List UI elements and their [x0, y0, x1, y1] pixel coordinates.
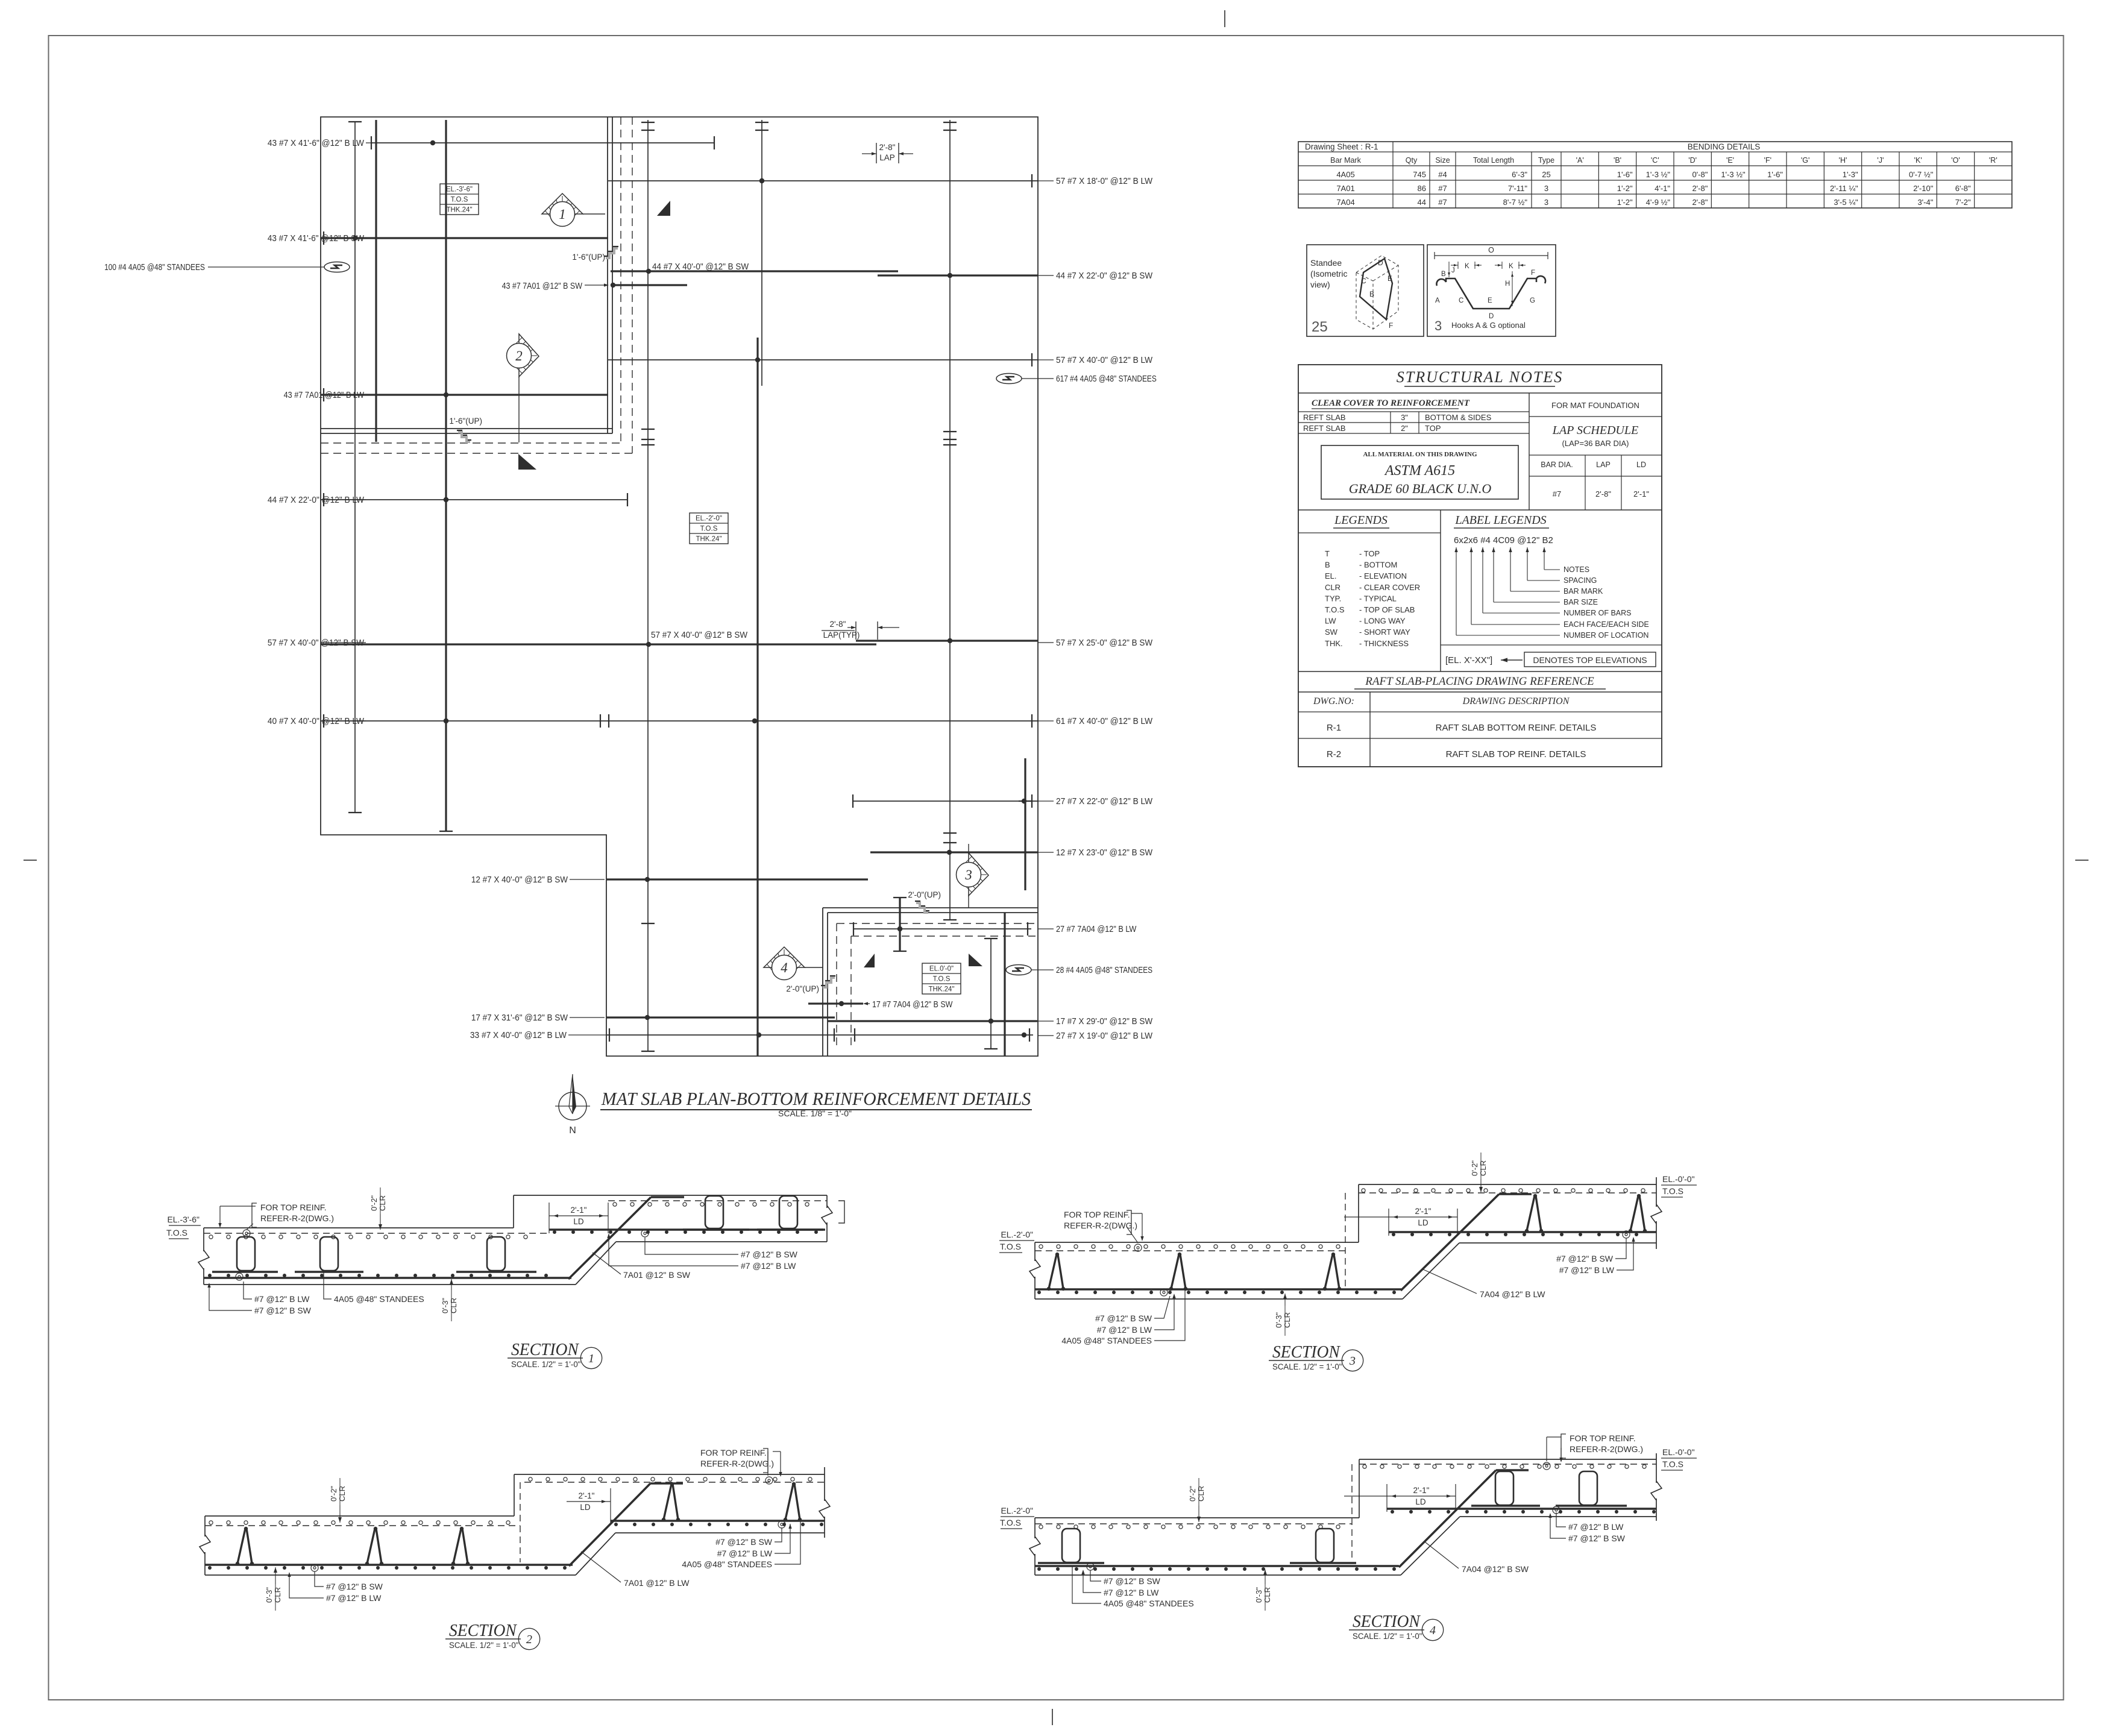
svg-text:2'-8": 2'-8" — [1692, 184, 1708, 193]
svg-text:Qty: Qty — [1406, 156, 1418, 165]
svg-text:- SHORT WAY: - SHORT WAY — [1359, 627, 1410, 637]
svg-text:0'-3": 0'-3" — [441, 1298, 450, 1313]
svg-text:25: 25 — [1542, 170, 1550, 179]
svg-text:6x2x6 #4 4C09 @12" B2: 6x2x6 #4 4C09 @12" B2 — [1454, 535, 1553, 546]
svg-text:3: 3 — [1544, 198, 1548, 207]
svg-text:1'-2": 1'-2" — [1617, 184, 1633, 193]
svg-text:'F': 'F' — [1764, 156, 1771, 165]
svg-text:TOP: TOP — [1425, 424, 1441, 433]
svg-text:100 #4 4A05 @48" STANDEES: 100 #4 4A05 @48" STANDEES — [104, 263, 205, 272]
svg-text:C: C — [1459, 297, 1463, 304]
svg-text:'R': 'R' — [1989, 156, 1997, 165]
svg-text:17 #7 7A04 @12" B SW: 17 #7 7A04 @12" B SW — [872, 1000, 953, 1010]
svg-text:R-2: R-2 — [1327, 749, 1341, 759]
svg-text:SW: SW — [1325, 627, 1338, 637]
svg-text:40 #7 X 40'-0" @12" B LW: 40 #7 X 40'-0" @12" B LW — [268, 717, 364, 726]
svg-text:- TOP: - TOP — [1359, 549, 1380, 558]
svg-text:1: 1 — [588, 1352, 594, 1365]
svg-text:1'-2": 1'-2" — [1617, 198, 1633, 207]
svg-text:B: B — [1369, 290, 1374, 298]
svg-text:LD: LD — [573, 1217, 584, 1226]
svg-text:2'-0"(UP): 2'-0"(UP) — [786, 984, 819, 993]
svg-text:CLR: CLR — [1196, 1486, 1205, 1502]
svg-text:1'-6"(UP): 1'-6"(UP) — [572, 253, 605, 262]
svg-text:Hooks A & G optional: Hooks A & G optional — [1451, 321, 1526, 330]
svg-text:0'-2": 0'-2" — [1470, 1160, 1479, 1176]
svg-text:#7 @12" B SW: #7 @12" B SW — [1104, 1576, 1161, 1586]
svg-text:SECTION: SECTION — [449, 1621, 517, 1640]
svg-text:3: 3 — [1349, 1354, 1356, 1368]
svg-text:N: N — [569, 1125, 576, 1136]
svg-text:7A04 @12" B LW: 7A04 @12" B LW — [1480, 1289, 1545, 1299]
svg-text:CLR: CLR — [1263, 1587, 1272, 1603]
svg-text:T.O.S: T.O.S — [933, 976, 951, 983]
svg-text:D: D — [1378, 259, 1383, 267]
svg-text:T.O.S: T.O.S — [1000, 1518, 1021, 1527]
svg-text:1'-3": 1'-3" — [1843, 170, 1858, 179]
svg-text:4A05 @48" STANDEES: 4A05 @48" STANDEES — [682, 1559, 772, 1569]
svg-text:2'-1": 2'-1" — [1413, 1486, 1430, 1495]
svg-text:- ELEVATION: - ELEVATION — [1359, 571, 1407, 580]
svg-text:7'-11": 7'-11" — [1508, 184, 1528, 193]
svg-text:SECTION: SECTION — [511, 1341, 579, 1359]
svg-text:EACH FACE/EACH SIDE: EACH FACE/EACH SIDE — [1564, 620, 1649, 629]
svg-text:REFER-R-2(DWG.): REFER-R-2(DWG.) — [1570, 1444, 1643, 1454]
svg-text:0'-7 ½": 0'-7 ½" — [1909, 170, 1934, 179]
svg-text:Type: Type — [1538, 156, 1554, 165]
svg-text:REFT SLAB: REFT SLAB — [1303, 424, 1346, 433]
svg-text:LAP: LAP — [1596, 461, 1611, 469]
svg-text:#7: #7 — [1438, 198, 1447, 207]
svg-text:27 #7 7A04 @12" B LW: 27 #7 7A04 @12" B LW — [1056, 925, 1137, 934]
svg-text:57 #7 X 40'-0" @12" B LW: 57 #7 X 40'-0" @12" B LW — [1056, 356, 1152, 365]
svg-text:7A01 @12" B SW: 7A01 @12" B SW — [623, 1270, 691, 1280]
svg-text:#7 @12" B LW: #7 @12" B LW — [326, 1593, 382, 1603]
svg-text:BAR DIA.: BAR DIA. — [1541, 461, 1573, 469]
svg-text:'G': 'G' — [1801, 156, 1810, 165]
svg-text:F: F — [1531, 269, 1535, 277]
svg-text:SCALE. 1/2" = 1'-0": SCALE. 1/2" = 1'-0" — [449, 1641, 519, 1650]
svg-text:- THICKNESS: - THICKNESS — [1359, 639, 1409, 648]
svg-text:17 #7 X 29'-0" @12" B SW: 17 #7 X 29'-0" @12" B SW — [1056, 1017, 1152, 1027]
svg-text:27 #7 X 19'-0" @12" B LW: 27 #7 X 19'-0" @12" B LW — [1056, 1031, 1152, 1041]
svg-text:SCALE. 1/2" = 1'-0": SCALE. 1/2" = 1'-0" — [1272, 1362, 1342, 1371]
svg-text:4A05: 4A05 — [1336, 170, 1354, 179]
svg-text:86: 86 — [1418, 184, 1426, 193]
svg-text:ASTM A615: ASTM A615 — [1384, 463, 1455, 479]
svg-text:#7 @12" B SW: #7 @12" B SW — [326, 1582, 383, 1591]
svg-text:LD: LD — [1636, 461, 1646, 469]
svg-text:LAP(TYP): LAP(TYP) — [823, 631, 860, 640]
svg-text:SCALE. 1/2" = 1'-0": SCALE. 1/2" = 1'-0" — [1353, 1632, 1422, 1641]
svg-text:LAP SCHEDULE: LAP SCHEDULE — [1552, 424, 1638, 437]
svg-text:ALL MATERIAL ON THIS DRAWING: ALL MATERIAL ON THIS DRAWING — [1363, 451, 1477, 458]
svg-text:T.O.S: T.O.S — [1325, 605, 1345, 614]
svg-text:#7: #7 — [1438, 184, 1447, 193]
svg-text:7'-2": 7'-2" — [1955, 198, 1971, 207]
svg-text:- TOP OF SLAB: - TOP OF SLAB — [1359, 605, 1415, 614]
svg-text:2'-0"(UP): 2'-0"(UP) — [908, 890, 941, 899]
svg-text:B: B — [1441, 271, 1446, 278]
svg-text:2'-1": 2'-1" — [579, 1491, 595, 1500]
svg-text:2'-8": 2'-8" — [1692, 198, 1708, 207]
svg-text:3": 3" — [1401, 413, 1408, 422]
svg-text:RAFT SLAB-PLACING DRAWING REFE: RAFT SLAB-PLACING DRAWING REFERENCE — [1365, 675, 1594, 688]
svg-text:Size: Size — [1435, 156, 1450, 165]
svg-text:REFT SLAB: REFT SLAB — [1303, 413, 1346, 422]
svg-text:- LONG WAY: - LONG WAY — [1359, 617, 1406, 626]
svg-text:#7 @12" B LW: #7 @12" B LW — [1559, 1265, 1615, 1275]
svg-text:THK.24": THK.24" — [696, 536, 721, 543]
svg-text:T.O.S: T.O.S — [1000, 1242, 1021, 1251]
svg-text:Total Length: Total Length — [1473, 156, 1514, 165]
svg-text:12 #7 X 40'-0" @12" B SW: 12 #7 X 40'-0" @12" B SW — [471, 875, 568, 885]
svg-text:57 #7 X 18'-0" @12" B LW: 57 #7 X 18'-0" @12" B LW — [1056, 177, 1152, 186]
svg-text:THK.24": THK.24" — [928, 986, 954, 993]
svg-text:25: 25 — [1312, 319, 1328, 335]
svg-text:SCALE. 1/2" = 1'-0": SCALE. 1/2" = 1'-0" — [511, 1360, 581, 1369]
svg-text:DRAWING DESCRIPTION: DRAWING DESCRIPTION — [1462, 696, 1570, 706]
svg-text:BENDING DETAILS: BENDING DETAILS — [1688, 142, 1761, 151]
svg-text:FOR TOP REINF.: FOR TOP REINF. — [1570, 1433, 1636, 1443]
svg-text:3'-4": 3'-4" — [1917, 198, 1933, 207]
svg-text:0'-3": 0'-3" — [265, 1587, 274, 1603]
svg-text:EL.-2'-0": EL.-2'-0" — [1001, 1506, 1033, 1515]
svg-text:BAR MARK: BAR MARK — [1564, 587, 1603, 596]
svg-text:28 #4 4A05 @48" STANDEES: 28 #4 4A05 @48" STANDEES — [1056, 966, 1152, 975]
svg-text:LABEL LEGENDS: LABEL LEGENDS — [1454, 514, 1546, 527]
svg-text:4: 4 — [781, 960, 788, 975]
svg-text:7A01: 7A01 — [1336, 184, 1354, 193]
svg-text:CLR: CLR — [378, 1195, 387, 1211]
svg-text:E: E — [1488, 297, 1492, 304]
svg-text:FOR TOP REINF.: FOR TOP REINF. — [1064, 1210, 1130, 1219]
svg-text:Standee: Standee — [1310, 258, 1342, 268]
svg-text:STRUCTURAL NOTES: STRUCTURAL NOTES — [1397, 368, 1563, 386]
svg-text:EL.-0'-0": EL.-0'-0" — [1662, 1174, 1695, 1184]
svg-text:#7 @12" B LW: #7 @12" B LW — [254, 1294, 310, 1304]
svg-text:- CLEAR COVER: - CLEAR COVER — [1359, 583, 1420, 592]
svg-text:T.O.S: T.O.S — [166, 1228, 187, 1238]
svg-text:4A05 @48" STANDEES: 4A05 @48" STANDEES — [1104, 1599, 1194, 1608]
svg-text:[EL. X'-XX"]: [EL. X'-XX"] — [1445, 655, 1492, 665]
svg-text:#4: #4 — [1438, 170, 1447, 179]
svg-text:#7 @12" B SW: #7 @12" B SW — [1095, 1313, 1152, 1323]
svg-text:Drawing Sheet : R-1: Drawing Sheet : R-1 — [1305, 142, 1378, 151]
svg-text:LAP: LAP — [879, 153, 895, 162]
svg-text:REFER-R-2(DWG.): REFER-R-2(DWG.) — [700, 1459, 774, 1468]
svg-text:57 #7 X 25'-0" @12" B SW: 57 #7 X 25'-0" @12" B SW — [1056, 638, 1152, 648]
svg-text:4'-9 ½": 4'-9 ½" — [1646, 198, 1671, 207]
svg-text:745: 745 — [1413, 170, 1426, 179]
svg-text:RAFT SLAB TOP REINF. DETAILS: RAFT SLAB TOP REINF. DETAILS — [1446, 749, 1586, 759]
svg-text:R-1: R-1 — [1327, 723, 1341, 733]
svg-text:EL.-2'-0": EL.-2'-0" — [696, 515, 722, 523]
svg-text:#7: #7 — [1553, 489, 1561, 498]
svg-text:EL.: EL. — [1325, 571, 1337, 580]
svg-text:17 #7 X 31'-6" @12" B SW: 17 #7 X 31'-6" @12" B SW — [471, 1013, 568, 1023]
svg-text:3: 3 — [964, 867, 972, 882]
svg-text:REFER-R-2(DWG.): REFER-R-2(DWG.) — [260, 1213, 334, 1223]
svg-text:7A01 @12" B LW: 7A01 @12" B LW — [624, 1578, 690, 1588]
svg-text:617 #4 4A05 @48" STANDEES: 617 #4 4A05 @48" STANDEES — [1056, 374, 1157, 384]
svg-text:C: C — [1361, 277, 1366, 285]
svg-text:0'-2": 0'-2" — [369, 1195, 379, 1211]
svg-text:CLEAR COVER TO REINFORCEMENT: CLEAR COVER TO REINFORCEMENT — [1312, 398, 1470, 408]
svg-text:43 #7 7A01 @12" B SW: 43 #7 7A01 @12" B SW — [502, 281, 583, 291]
svg-text:- TYPICAL: - TYPICAL — [1359, 594, 1397, 603]
svg-text:2: 2 — [526, 1633, 532, 1646]
svg-text:T: T — [1325, 549, 1330, 558]
svg-text:D: D — [1489, 313, 1494, 320]
svg-text:CLR: CLR — [1325, 583, 1340, 592]
svg-text:2": 2" — [1401, 424, 1408, 433]
svg-text:CLR: CLR — [338, 1486, 347, 1502]
svg-text:2'-8": 2'-8" — [879, 143, 896, 152]
svg-text:#7 @12" B LW: #7 @12" B LW — [717, 1549, 773, 1558]
svg-text:K: K — [1465, 263, 1469, 270]
svg-text:7A04 @12" B SW: 7A04 @12" B SW — [1462, 1564, 1529, 1574]
svg-text:O: O — [1488, 246, 1494, 254]
svg-text:(Isometric: (Isometric — [1310, 269, 1347, 278]
svg-text:T.O.S: T.O.S — [1662, 1459, 1683, 1469]
svg-text:FOR TOP REINF.: FOR TOP REINF. — [260, 1203, 327, 1212]
svg-text:1'-3 ½": 1'-3 ½" — [1646, 170, 1671, 179]
svg-text:BAR SIZE: BAR SIZE — [1564, 598, 1598, 606]
svg-text:CLR: CLR — [449, 1298, 458, 1313]
svg-text:'D': 'D' — [1688, 156, 1697, 165]
svg-text:44 #7 X 22'-0" @12" B SW: 44 #7 X 22'-0" @12" B SW — [1056, 271, 1152, 281]
svg-text:1'-6"(UP): 1'-6"(UP) — [449, 417, 482, 426]
svg-text:GRADE 60 BLACK U.N.O: GRADE 60 BLACK U.N.O — [1349, 481, 1492, 496]
svg-text:EL.-3'-6": EL.-3'-6" — [446, 186, 473, 193]
svg-text:0'-3": 0'-3" — [1254, 1587, 1263, 1603]
svg-text:LD: LD — [1418, 1218, 1428, 1227]
svg-text:'J': 'J' — [1877, 156, 1884, 165]
svg-text:#7 @12" B SW: #7 @12" B SW — [715, 1537, 773, 1547]
svg-text:44: 44 — [1418, 198, 1426, 207]
svg-text:MAT SLAB PLAN-BOTTOM REINFORCE: MAT SLAB PLAN-BOTTOM REINFORCEMENT DETAI… — [601, 1088, 1031, 1109]
svg-text:EL.-2'-0": EL.-2'-0" — [1001, 1230, 1033, 1239]
svg-text:EL.-3'-6": EL.-3'-6" — [167, 1215, 200, 1224]
svg-text:#7 @12" B LW: #7 @12" B LW — [1104, 1588, 1159, 1597]
svg-text:4: 4 — [1430, 1624, 1436, 1637]
svg-text:2'-10": 2'-10" — [1913, 184, 1934, 193]
svg-text:RAFT SLAB BOTTOM REINF. DETAIL: RAFT SLAB BOTTOM REINF. DETAILS — [1436, 723, 1597, 733]
svg-text:#7 @12" B SW: #7 @12" B SW — [741, 1250, 798, 1259]
svg-text:FOR MAT FOUNDATION: FOR MAT FOUNDATION — [1551, 401, 1639, 410]
svg-text:LW: LW — [1325, 617, 1336, 626]
svg-text:#7 @12" B LW: #7 @12" B LW — [1568, 1522, 1624, 1532]
svg-text:0'-2": 0'-2" — [329, 1486, 338, 1502]
svg-text:43 #7 7A01 @12" B LW: 43 #7 7A01 @12" B LW — [284, 391, 365, 400]
svg-text:'C': 'C' — [1651, 156, 1659, 165]
svg-text:Bar Mark: Bar Mark — [1330, 156, 1361, 165]
svg-text:REFER-R-2(DWG.): REFER-R-2(DWG.) — [1064, 1221, 1137, 1230]
svg-text:'E': 'E' — [1726, 156, 1734, 165]
svg-text:NOTES: NOTES — [1564, 565, 1589, 574]
svg-text:2: 2 — [515, 348, 523, 363]
svg-text:2'-11 ¼": 2'-11 ¼" — [1830, 184, 1858, 193]
svg-text:view): view) — [1310, 280, 1330, 289]
svg-text:G: G — [1530, 297, 1535, 304]
svg-text:H: H — [1505, 280, 1510, 288]
svg-text:'O': 'O' — [1951, 156, 1960, 165]
svg-text:SECTION: SECTION — [1353, 1612, 1421, 1631]
svg-text:BOTTOM & SIDES: BOTTOM & SIDES — [1425, 413, 1492, 422]
svg-text:12 #7 X 23'-0" @12" B SW: 12 #7 X 23'-0" @12" B SW — [1056, 848, 1152, 858]
svg-text:CLR: CLR — [273, 1587, 282, 1603]
svg-text:'A': 'A' — [1576, 156, 1584, 165]
svg-text:0'-2": 0'-2" — [1188, 1486, 1197, 1502]
svg-text:THK.24": THK.24" — [446, 207, 472, 214]
svg-text:3: 3 — [1544, 184, 1548, 193]
svg-text:6'-8": 6'-8" — [1955, 184, 1971, 193]
svg-text:NUMBER OF LOCATION: NUMBER OF LOCATION — [1564, 631, 1648, 640]
svg-text:F: F — [1389, 321, 1393, 330]
svg-text:4A05 @48" STANDEES: 4A05 @48" STANDEES — [334, 1294, 424, 1304]
svg-text:2'-1": 2'-1" — [1633, 489, 1649, 498]
svg-text:43 #7 X 41'-6" @12" B LW: 43 #7 X 41'-6" @12" B LW — [268, 139, 364, 148]
svg-text:DENOTES TOP ELEVATIONS: DENOTES TOP ELEVATIONS — [1533, 655, 1647, 665]
svg-text:1'-3 ½": 1'-3 ½" — [1721, 170, 1746, 179]
svg-text:57 #7 X 40'-0" @12" B SW: 57 #7 X 40'-0" @12" B SW — [268, 638, 364, 648]
svg-text:SPACING: SPACING — [1564, 576, 1597, 585]
svg-text:T.O.S: T.O.S — [700, 526, 718, 533]
svg-text:'H': 'H' — [1839, 156, 1847, 165]
svg-text:0'-8": 0'-8" — [1692, 170, 1708, 179]
svg-text:CLR: CLR — [1283, 1312, 1292, 1328]
svg-text:44 #7 X 22'-0" @12" B LW: 44 #7 X 22'-0" @12" B LW — [268, 495, 364, 505]
svg-text:A: A — [1435, 297, 1440, 304]
svg-text:T.O.S: T.O.S — [1662, 1186, 1683, 1196]
svg-text:#7 @12" B SW: #7 @12" B SW — [1556, 1254, 1614, 1263]
svg-text:LD: LD — [1415, 1497, 1426, 1506]
svg-text:61 #7 X 40'-0" @12" B LW: 61 #7 X 40'-0" @12" B LW — [1056, 717, 1152, 726]
svg-text:2'-1": 2'-1" — [1415, 1207, 1432, 1216]
svg-text:J: J — [1451, 267, 1455, 274]
svg-text:1'-6": 1'-6" — [1617, 170, 1633, 179]
svg-text:CLR: CLR — [1479, 1160, 1488, 1176]
svg-text:1: 1 — [559, 207, 566, 222]
svg-text:#7 @12" B SW: #7 @12" B SW — [254, 1306, 312, 1315]
svg-text:6'-3": 6'-3" — [1512, 170, 1527, 179]
svg-text:- BOTTOM: - BOTTOM — [1359, 561, 1397, 570]
svg-text:'B': 'B' — [1614, 156, 1621, 165]
svg-text:B: B — [1325, 561, 1330, 570]
svg-text:SCALE. 1/8" = 1'-0": SCALE. 1/8" = 1'-0" — [778, 1109, 852, 1118]
svg-text:33 #7 X 40'-0" @12" B LW: 33 #7 X 40'-0" @12" B LW — [470, 1031, 567, 1040]
svg-text:44 #7 X 40'-0" @12" B SW: 44 #7 X 40'-0" @12" B SW — [652, 262, 749, 272]
svg-text:TYP.: TYP. — [1325, 594, 1341, 603]
svg-text:0'-3": 0'-3" — [1274, 1312, 1283, 1328]
svg-text:FOR TOP REINF.: FOR TOP REINF. — [700, 1448, 767, 1458]
svg-text:3'-5 ¼": 3'-5 ¼" — [1834, 198, 1858, 207]
svg-text:DWG.NO:: DWG.NO: — [1313, 696, 1354, 706]
svg-text:#7 @12" B LW: #7 @12" B LW — [741, 1261, 796, 1271]
svg-text:4'-1": 4'-1" — [1655, 184, 1670, 193]
svg-text:'K': 'K' — [1914, 156, 1922, 165]
svg-text:7A04: 7A04 — [1336, 198, 1354, 207]
svg-text:3: 3 — [1435, 318, 1442, 333]
svg-text:(LAP=36 BAR DIA): (LAP=36 BAR DIA) — [1562, 439, 1629, 448]
svg-text:1'-6": 1'-6" — [1767, 170, 1783, 179]
svg-text:EL.0'-0": EL.0'-0" — [929, 966, 954, 973]
svg-text:#7 @12" B LW: #7 @12" B LW — [1097, 1325, 1152, 1335]
svg-text:E: E — [1388, 274, 1392, 283]
svg-text:2'-8": 2'-8" — [830, 620, 846, 629]
svg-text:2'-1": 2'-1" — [571, 1206, 587, 1215]
svg-text:EL.-0'-0": EL.-0'-0" — [1662, 1447, 1695, 1457]
svg-text:27 #7 X 22'-0" @12" B LW: 27 #7 X 22'-0" @12" B LW — [1056, 797, 1152, 807]
svg-text:4A05 @48" STANDEES: 4A05 @48" STANDEES — [1061, 1336, 1152, 1345]
svg-text:LD: LD — [580, 1503, 591, 1512]
svg-text:#7 @12" B SW: #7 @12" B SW — [1568, 1533, 1626, 1543]
svg-text:T.O.S: T.O.S — [451, 197, 468, 204]
svg-text:2'-8": 2'-8" — [1595, 489, 1611, 498]
svg-text:43 #7 X 41'-6" @12" B SW: 43 #7 X 41'-6" @12" B SW — [268, 234, 364, 244]
svg-text:THK.: THK. — [1325, 639, 1343, 648]
svg-text:LEGENDS: LEGENDS — [1334, 514, 1388, 527]
svg-text:K: K — [1509, 263, 1513, 270]
svg-text:SECTION: SECTION — [1272, 1343, 1340, 1362]
svg-text:8'-7 ½": 8'-7 ½" — [1503, 198, 1528, 207]
svg-text:57 #7 X 40'-0" @12" B SW: 57 #7 X 40'-0" @12" B SW — [651, 631, 747, 640]
svg-text:NUMBER OF BARS: NUMBER OF BARS — [1564, 609, 1632, 617]
